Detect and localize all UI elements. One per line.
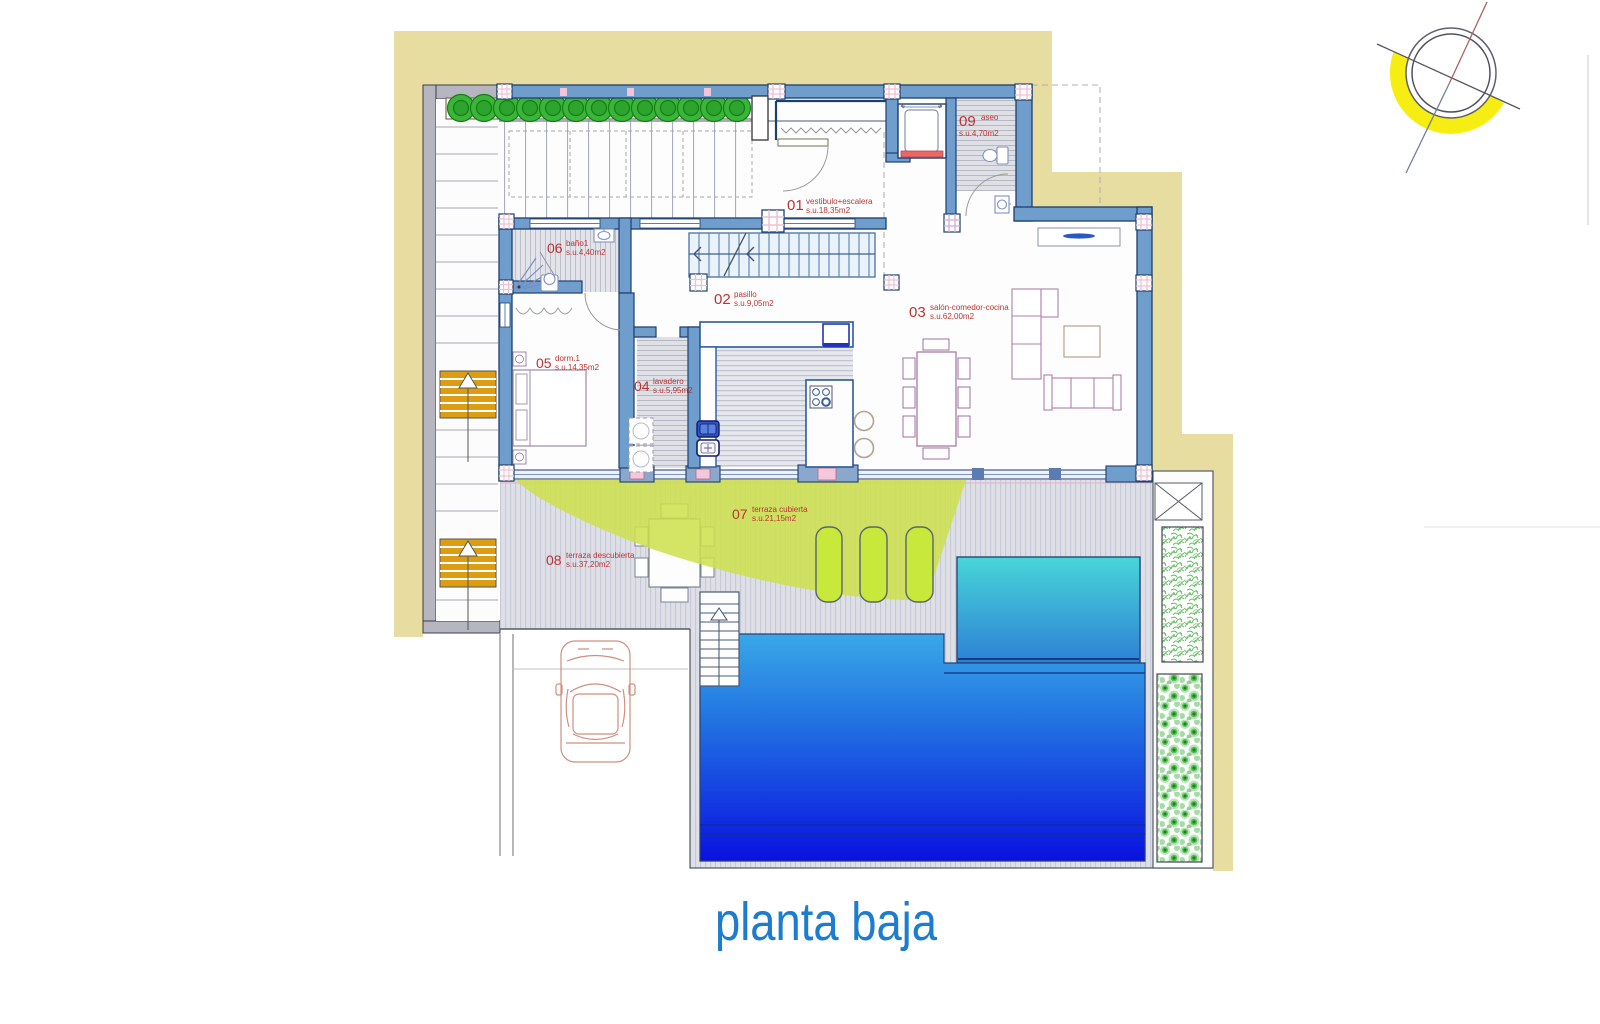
- svg-text:vestibulo+escalera: vestibulo+escalera: [806, 197, 873, 206]
- svg-text:s.u.9,05m2: s.u.9,05m2: [734, 299, 774, 308]
- svg-text:01: 01: [787, 197, 804, 214]
- svg-text:aseo: aseo: [981, 113, 999, 122]
- svg-text:02: 02: [714, 291, 731, 308]
- svg-text:06: 06: [547, 240, 563, 256]
- svg-text:s.u.4,70m2: s.u.4,70m2: [959, 129, 999, 138]
- svg-text:05: 05: [536, 355, 552, 371]
- svg-text:terraza cubierta: terraza cubierta: [752, 505, 808, 514]
- svg-text:09: 09: [959, 113, 976, 130]
- svg-text:pasillo: pasillo: [734, 290, 757, 299]
- svg-text:s.u.62,00m2: s.u.62,00m2: [930, 312, 975, 321]
- svg-text:s.u.14,35m2: s.u.14,35m2: [555, 363, 600, 372]
- svg-text:lavadero: lavadero: [653, 377, 684, 386]
- svg-text:07: 07: [732, 506, 748, 522]
- svg-text:08: 08: [546, 552, 562, 568]
- svg-text:planta baja: planta baja: [715, 892, 938, 952]
- svg-text:s.u.18,35m2: s.u.18,35m2: [806, 206, 851, 215]
- svg-text:salón-comedor-cocina: salón-comedor-cocina: [930, 303, 1009, 312]
- svg-text:dorm.1: dorm.1: [555, 354, 580, 363]
- svg-text:terraza descubierta: terraza descubierta: [566, 551, 635, 560]
- svg-text:04: 04: [634, 378, 650, 394]
- svg-text:03: 03: [909, 304, 926, 321]
- svg-text:s.u.4,40m2: s.u.4,40m2: [566, 248, 606, 257]
- svg-text:s.u.5,95m2: s.u.5,95m2: [653, 386, 693, 395]
- svg-text:s.u.37,20m2: s.u.37,20m2: [566, 560, 611, 569]
- svg-text:s.u.21,15m2: s.u.21,15m2: [752, 514, 797, 523]
- svg-text:baño1: baño1: [566, 239, 589, 248]
